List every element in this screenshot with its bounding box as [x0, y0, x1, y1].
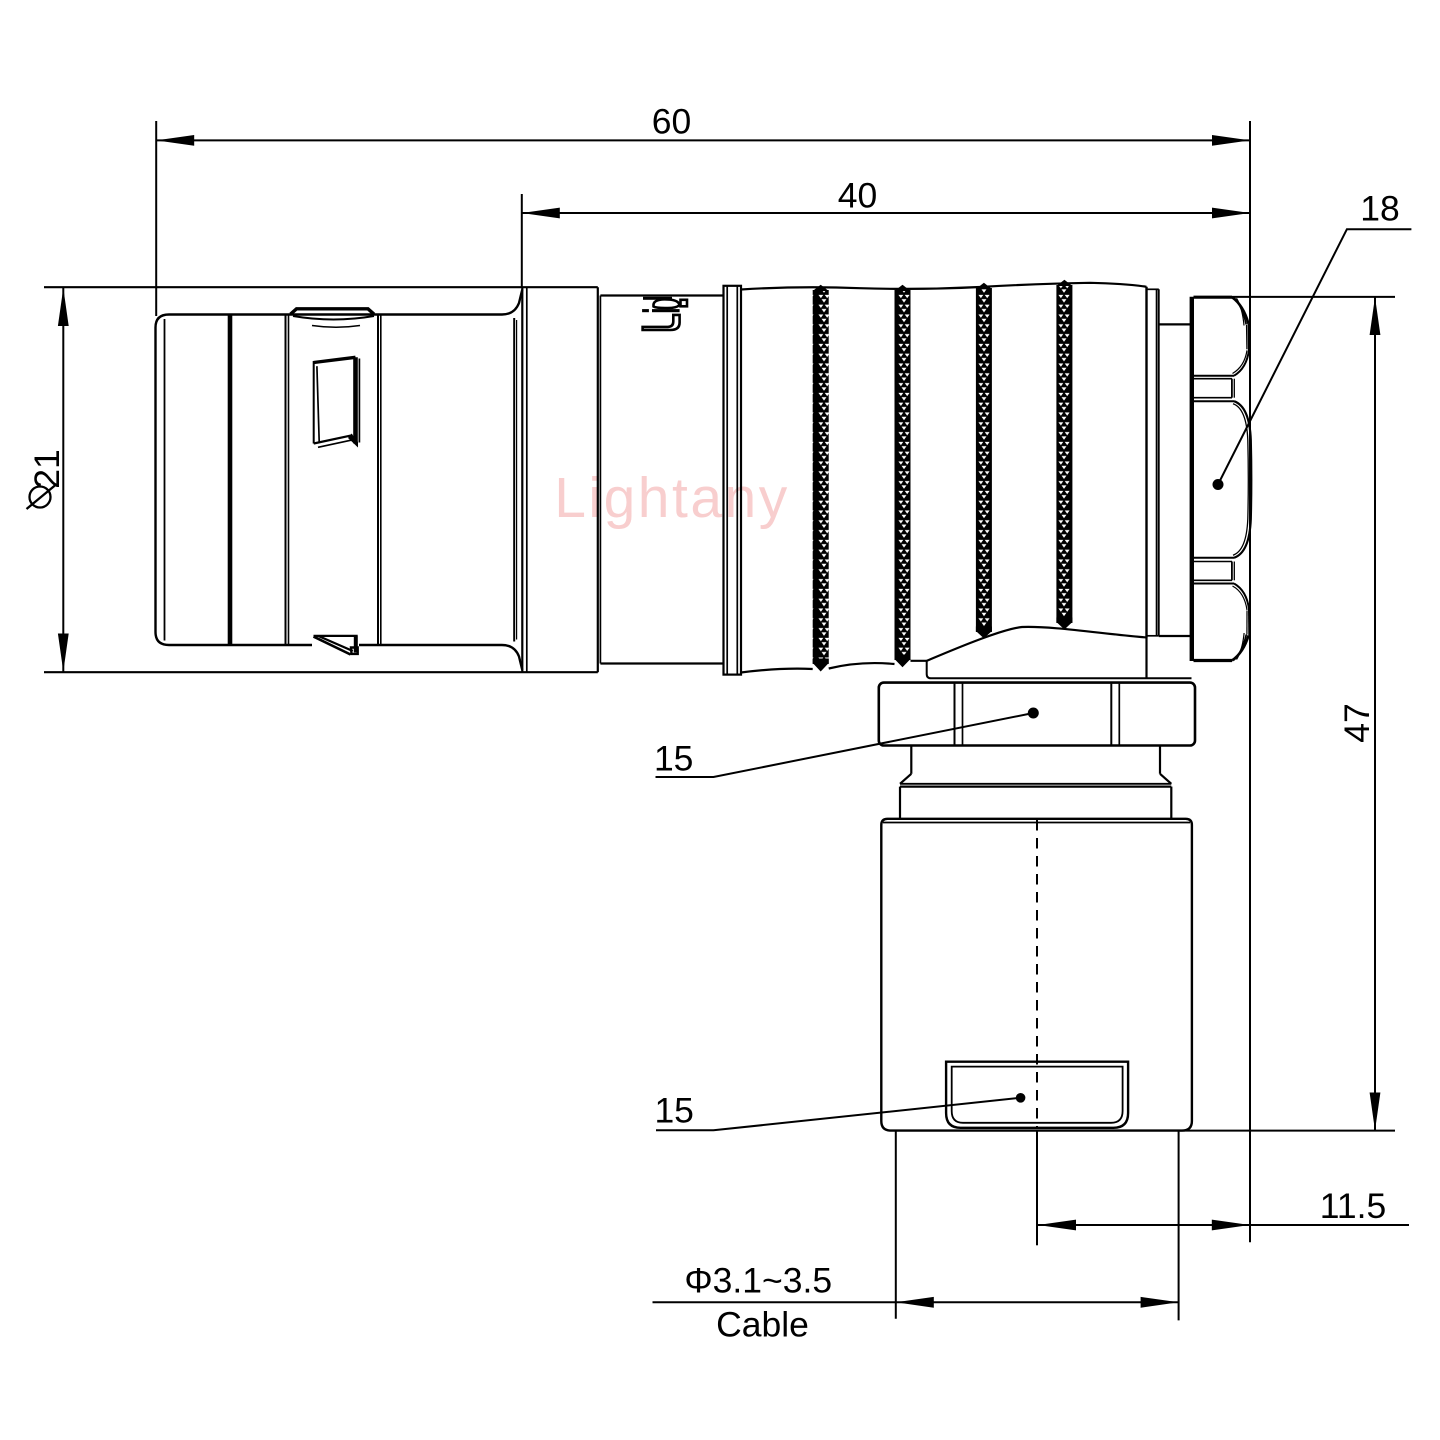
svg-text:15: 15 — [654, 738, 694, 778]
svg-text:40: 40 — [838, 176, 878, 216]
svg-text:Cable: Cable — [716, 1304, 809, 1344]
svg-text:15: 15 — [654, 1091, 694, 1131]
svg-text:Φ3.1~3.5: Φ3.1~3.5 — [684, 1261, 832, 1301]
svg-text:47: 47 — [1337, 703, 1377, 743]
svg-text:21: 21 — [27, 449, 67, 489]
svg-text:11.5: 11.5 — [1320, 1186, 1386, 1226]
svg-text:18: 18 — [1360, 189, 1400, 229]
svg-text:60: 60 — [652, 101, 692, 141]
svg-text:Lightany: Lightany — [554, 466, 790, 530]
